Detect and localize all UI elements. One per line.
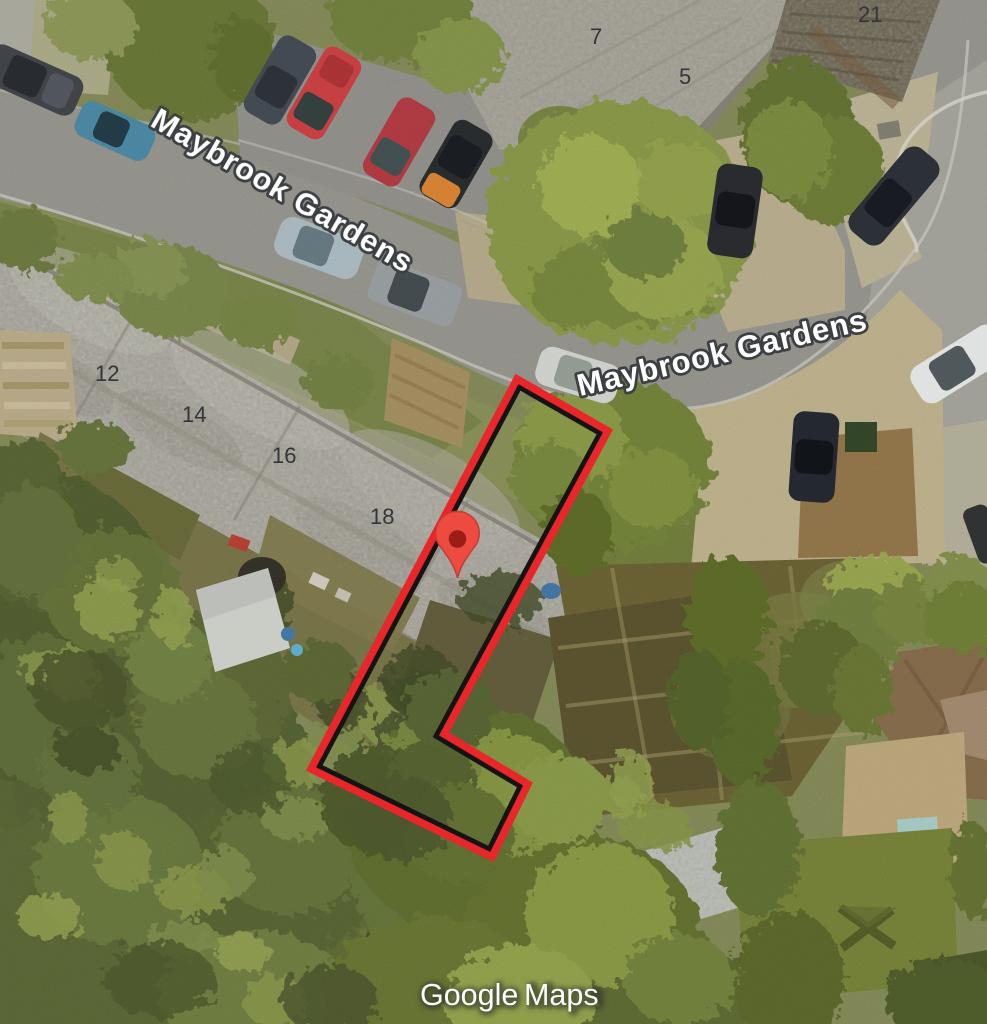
svg-text:14: 14 bbox=[182, 402, 206, 427]
svg-text:12: 12 bbox=[95, 361, 119, 386]
svg-text:16: 16 bbox=[272, 443, 296, 468]
svg-text:Google: Google bbox=[420, 978, 518, 1012]
svg-text:5: 5 bbox=[679, 64, 691, 89]
svg-text:Maps: Maps bbox=[524, 978, 599, 1012]
svg-text:18: 18 bbox=[370, 504, 394, 529]
svg-text:7: 7 bbox=[590, 24, 602, 49]
svg-text:21: 21 bbox=[858, 2, 882, 27]
